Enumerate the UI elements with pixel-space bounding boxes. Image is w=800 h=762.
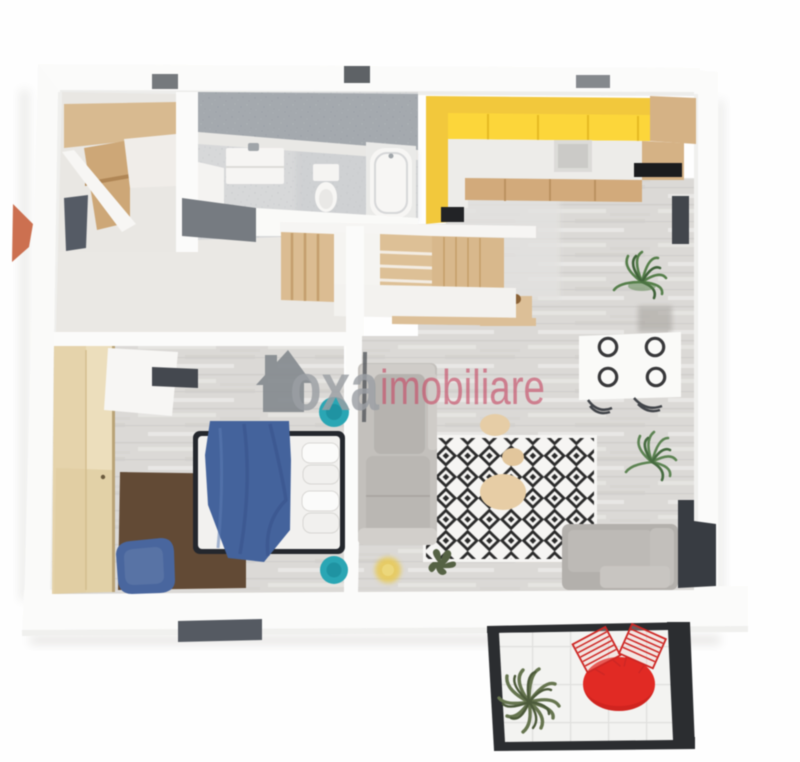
svg-text:oxa: oxa xyxy=(290,350,380,425)
svg-text:imobiliare: imobiliare xyxy=(380,361,545,415)
